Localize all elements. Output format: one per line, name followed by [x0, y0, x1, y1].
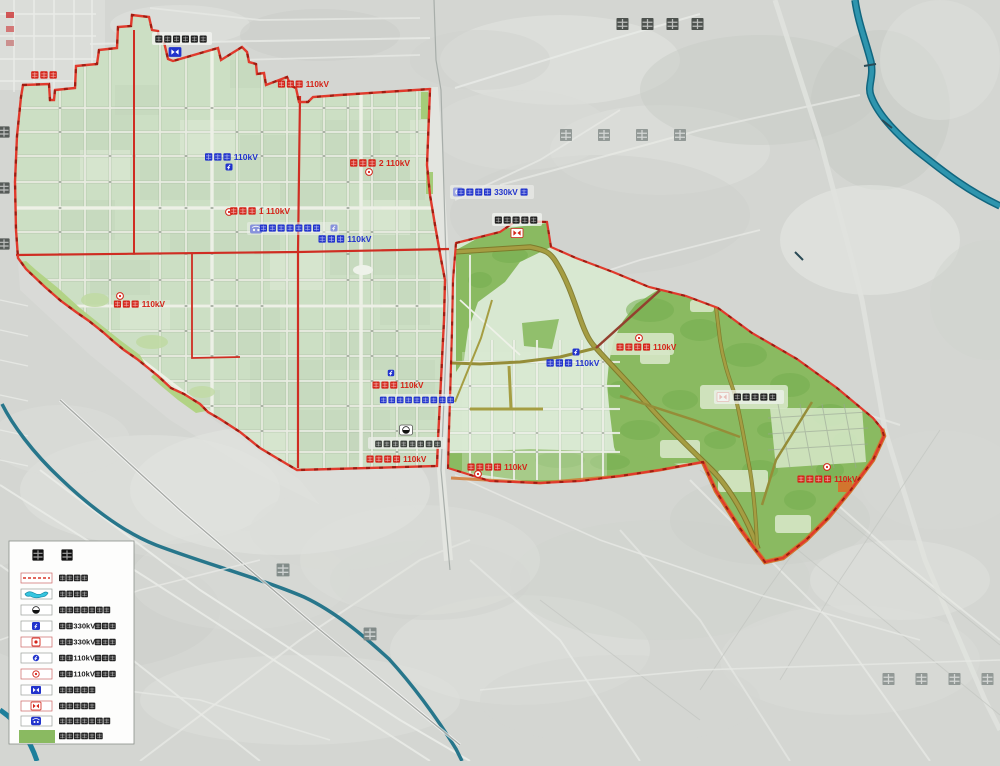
svg-text:330kV: 330kV: [494, 188, 518, 197]
svg-text:110kV: 110kV: [73, 670, 95, 679]
svg-text:330kV: 330kV: [73, 622, 96, 631]
svg-text:110kV: 110kV: [403, 455, 427, 464]
svg-text:110kV: 110kV: [306, 80, 330, 89]
svg-text:1 110kV: 1 110kV: [259, 206, 291, 216]
svg-text:110kV: 110kV: [653, 343, 677, 352]
svg-text:110kV: 110kV: [234, 152, 258, 162]
svg-text:110kV: 110kV: [400, 381, 424, 390]
svg-text:330kV: 330kV: [73, 638, 96, 647]
svg-text:110kV: 110kV: [504, 463, 528, 472]
svg-text:110kV: 110kV: [834, 475, 858, 484]
svg-text:110kV: 110kV: [575, 358, 599, 368]
svg-text:110kV: 110kV: [347, 234, 371, 244]
svg-text:110kV: 110kV: [142, 300, 166, 309]
svg-text:110kV: 110kV: [73, 654, 95, 663]
svg-text:2 110kV: 2 110kV: [379, 158, 411, 168]
